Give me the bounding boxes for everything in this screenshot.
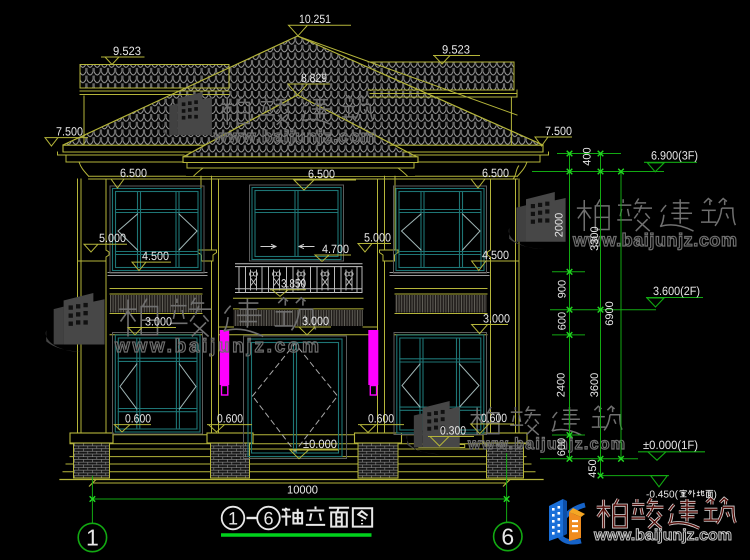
svg-text:1: 1: [86, 525, 99, 551]
svg-text:3300: 3300: [589, 226, 601, 250]
svg-text:0.600: 0.600: [217, 411, 243, 425]
svg-text:6.900(3F): 6.900(3F): [651, 149, 698, 163]
svg-text:www.baijunjz.com: www.baijunjz.com: [593, 527, 732, 544]
svg-text:0.600: 0.600: [125, 411, 151, 425]
svg-text:9.523: 9.523: [442, 42, 470, 56]
svg-text:3600: 3600: [589, 373, 601, 397]
svg-text:3.000: 3.000: [145, 314, 172, 328]
svg-text:450: 450: [587, 459, 599, 477]
svg-text:8.829: 8.829: [301, 71, 327, 85]
svg-text:±0.000: ±0.000: [303, 437, 337, 451]
svg-text:6.500: 6.500: [482, 166, 509, 180]
svg-text:4.500: 4.500: [482, 248, 509, 262]
svg-text:6900: 6900: [604, 301, 616, 325]
svg-text:): ): [714, 490, 717, 501]
svg-text:±0.000(1F): ±0.000(1F): [643, 438, 698, 452]
svg-text:600: 600: [556, 438, 568, 456]
svg-text:0.600: 0.600: [481, 411, 507, 425]
svg-text:6.500: 6.500: [308, 167, 335, 181]
svg-text:6: 6: [263, 509, 273, 529]
svg-text:2400: 2400: [556, 373, 568, 397]
svg-text:3.000: 3.000: [302, 314, 329, 328]
svg-text:6: 6: [501, 524, 514, 550]
svg-text:9.523: 9.523: [113, 44, 141, 58]
svg-text:400: 400: [582, 147, 594, 165]
svg-text:2000: 2000: [554, 213, 566, 237]
svg-text:4.700: 4.700: [322, 242, 349, 256]
svg-text:10.251: 10.251: [299, 12, 331, 26]
svg-text:7.500: 7.500: [545, 124, 572, 138]
svg-text:3.600(2F): 3.600(2F): [653, 284, 700, 298]
svg-text:7.500: 7.500: [56, 124, 83, 138]
svg-text:3.000: 3.000: [483, 311, 510, 325]
svg-text:www.baijunjz.com: www.baijunjz.com: [467, 436, 625, 453]
svg-text:4.500: 4.500: [142, 249, 169, 263]
svg-text:900: 900: [557, 280, 569, 298]
svg-text:6.500: 6.500: [120, 166, 147, 180]
svg-text:0.600: 0.600: [368, 411, 394, 425]
svg-text:www.baijunjz.com: www.baijunjz.com: [213, 127, 376, 146]
svg-text:5.000: 5.000: [364, 230, 391, 244]
svg-text:3.850: 3.850: [281, 277, 306, 291]
svg-text:0.300: 0.300: [440, 423, 466, 437]
svg-text:1: 1: [228, 509, 238, 529]
svg-text:600: 600: [557, 312, 569, 330]
svg-text:10000: 10000: [287, 485, 318, 497]
svg-text:5.000: 5.000: [99, 231, 126, 245]
